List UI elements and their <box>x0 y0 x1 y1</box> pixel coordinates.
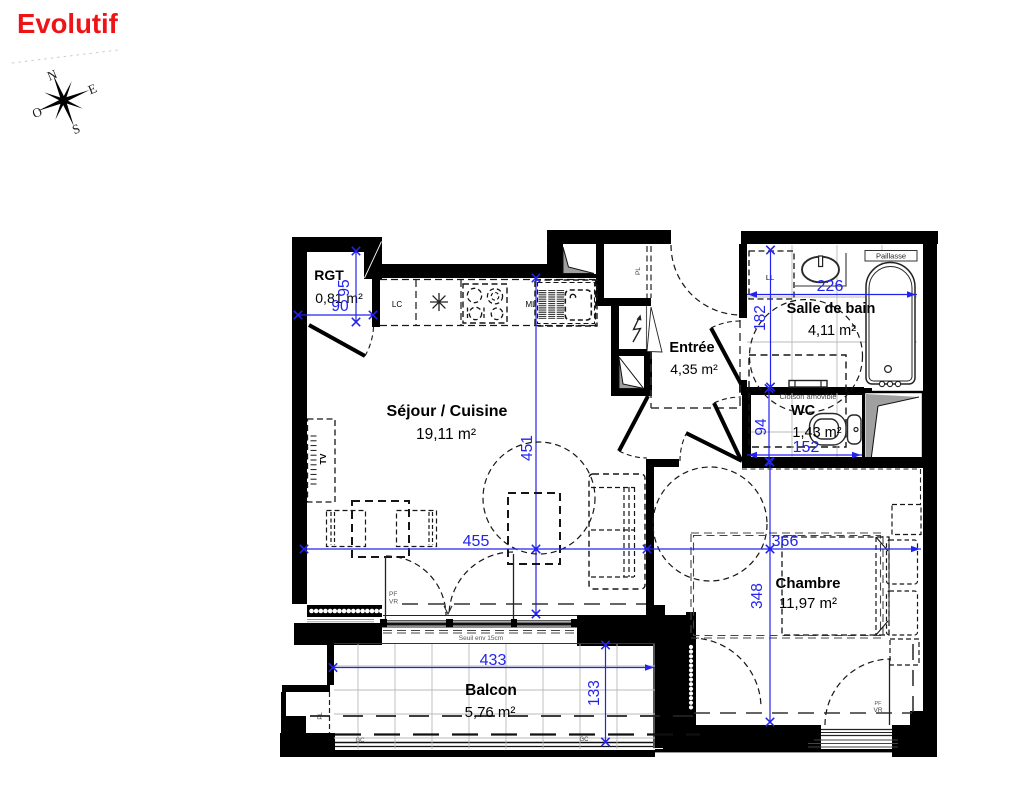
svg-text:366: 366 <box>772 533 799 550</box>
svg-text:90: 90 <box>331 298 349 315</box>
svg-text:Cloison amovible: Cloison amovible <box>779 392 836 401</box>
svg-text:5,76 m²: 5,76 m² <box>465 704 516 721</box>
svg-text:Salle de bain: Salle de bain <box>787 301 876 317</box>
svg-text:Chambre: Chambre <box>775 575 840 592</box>
svg-text:PF: PF <box>389 591 397 598</box>
svg-text:TV: TV <box>318 453 328 464</box>
svg-text:94: 94 <box>753 418 770 436</box>
svg-text:455: 455 <box>463 533 490 550</box>
svg-text:152: 152 <box>793 439 820 456</box>
svg-text:11,97 m²: 11,97 m² <box>779 595 837 612</box>
svg-text:226: 226 <box>817 278 844 295</box>
svg-text:4,11 m²: 4,11 m² <box>808 323 856 339</box>
svg-text:VR: VR <box>873 707 882 714</box>
svg-text:ML: ML <box>525 300 537 309</box>
svg-text:Paillasse: Paillasse <box>876 252 906 261</box>
svg-text:Evolutif: Evolutif <box>17 8 119 39</box>
svg-text:348: 348 <box>749 583 766 609</box>
svg-text:451: 451 <box>519 435 536 461</box>
svg-text:LC: LC <box>392 300 402 309</box>
svg-text:95: 95 <box>336 279 353 296</box>
svg-text:133: 133 <box>586 680 603 706</box>
svg-text:Seuil env 15cm: Seuil env 15cm <box>459 635 503 642</box>
svg-text:PL: PL <box>635 267 642 275</box>
svg-text:GC: GC <box>356 738 366 744</box>
svg-text:182: 182 <box>752 305 769 331</box>
svg-text:4,35 m²: 4,35 m² <box>670 361 718 377</box>
svg-text:Entrée: Entrée <box>669 340 714 356</box>
svg-text:433: 433 <box>480 652 507 669</box>
svg-text:Séjour / Cuisine: Séjour / Cuisine <box>387 403 508 420</box>
svg-text:Balcon: Balcon <box>465 682 517 699</box>
svg-text:19,11 m²: 19,11 m² <box>416 426 476 443</box>
svg-text:WC: WC <box>791 403 816 419</box>
svg-text:VR: VR <box>389 599 398 606</box>
svg-text:GC: GC <box>580 737 590 743</box>
